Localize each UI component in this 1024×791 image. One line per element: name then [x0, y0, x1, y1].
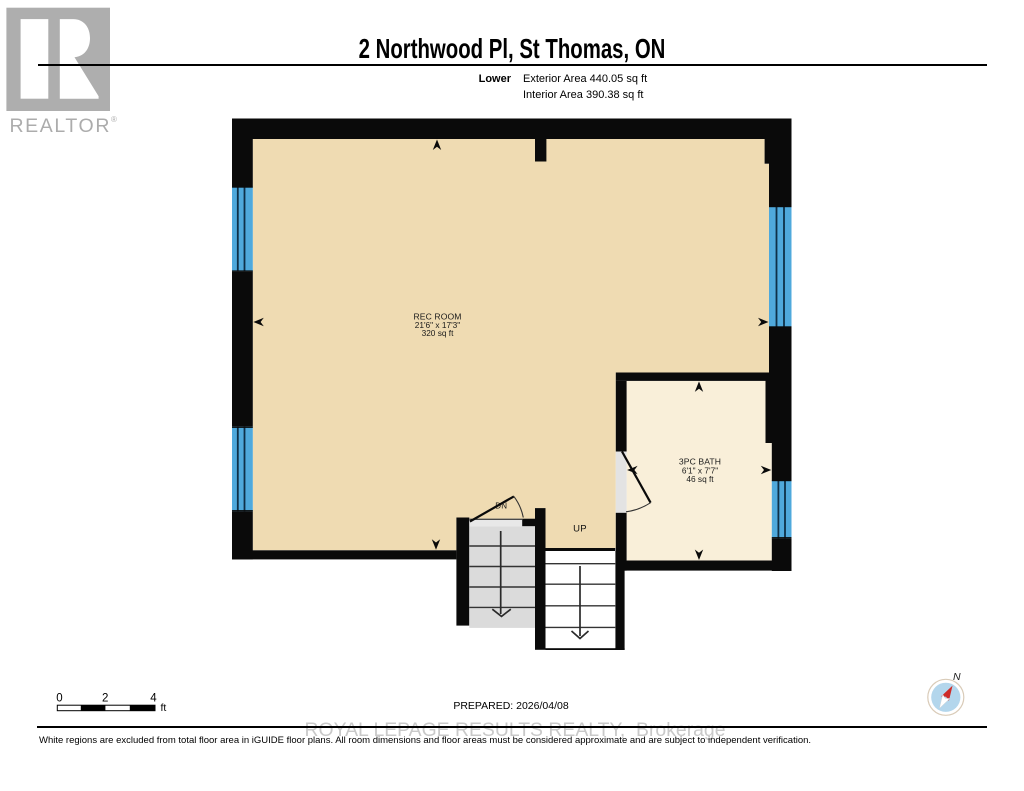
svg-text:46 sq ft: 46 sq ft	[686, 474, 714, 484]
svg-text:UP: UP	[573, 524, 587, 535]
svg-text:DN: DN	[495, 502, 507, 511]
svg-text:320 sq ft: 320 sq ft	[422, 328, 455, 338]
svg-text:N: N	[953, 671, 961, 683]
